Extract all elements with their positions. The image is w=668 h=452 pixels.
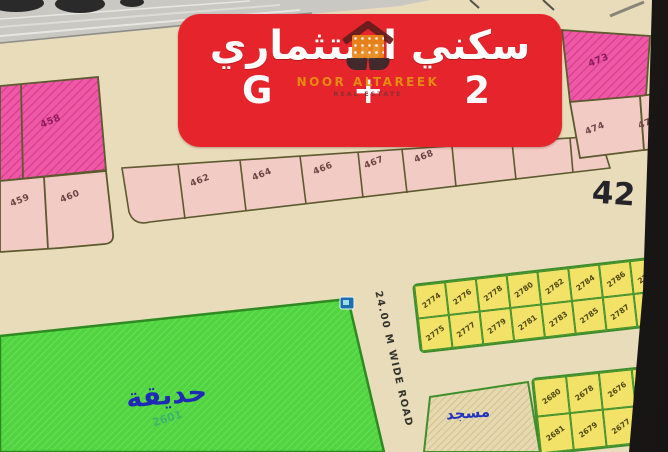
plot-number: 2789 [640,299,662,319]
plot-473-hatched [562,30,650,102]
plot-cell: 2774 [414,282,449,318]
agency-name: NOOR ALTAREEK [283,75,453,89]
plot-number: 2774 [420,291,442,311]
plot-number: 2778 [482,284,504,304]
plot-cell: 2678 [566,373,603,413]
plot-cell: 2777 [449,312,484,348]
plot-cell: 2780 [507,272,542,308]
plot-number: 2677 [610,417,632,437]
plot-cell: 2783 [541,301,576,337]
plot-cell: 2775 [418,315,453,351]
plot-number: 2678 [573,383,595,403]
plot-474 [570,96,644,158]
plot-number: 2782 [544,277,566,297]
plot-number: 2775 [424,323,446,343]
plot-458-hatched [0,77,106,181]
plot-number: 2675 [643,413,665,433]
plot-number: 2777 [455,320,477,340]
plot-cell: 2787 [603,294,638,330]
pink-plot-cluster-left [0,77,113,252]
plot-cell: 2781 [510,305,545,341]
agency-tagline: REAL ESTATE [283,90,453,98]
plot-number: 2674 [639,376,661,396]
plot-cell: 2786 [599,261,634,297]
plot-number: 2680 [540,387,562,407]
plot-cell: 2785 [572,297,607,333]
plot-number: 2676 [606,380,628,400]
plot-number: 2787 [609,302,631,322]
plot-cell: 2788 [630,258,665,294]
plot-number: 2781 [517,313,539,333]
plot-459-460 [0,171,113,252]
plot-number: 2788 [636,266,658,286]
plot-number: 2785 [578,306,600,326]
plot-cell: 2778 [476,275,511,311]
plot-number: 2784 [574,273,596,293]
yellow-plot-grid-lower: 2680 2678 2676 2674 2681 2679 2677 2675 [531,364,668,452]
district-number: 42 [591,175,637,214]
plot-cell: 2676 [599,369,636,409]
plot-map-image: 2774 2776 2778 2780 2782 2784 2786 2788 … [0,0,668,452]
map-marker-icon [340,297,354,309]
plot-number: 2681 [544,423,566,443]
plot-cell: 2779 [480,308,515,344]
plot-number: 2779 [486,316,508,336]
agency-watermark: NOOR ALTAREEK REAL ESTATE [283,16,453,98]
plot-number: 2786 [605,270,627,290]
plot-cell: 2680 [533,376,570,416]
plot-cell: 2674 [632,366,668,406]
plot-cell: 2679 [570,410,607,450]
mosque-label: مسجد [445,402,490,423]
plot-cell: 2681 [537,413,574,452]
plot-cell: 2776 [445,279,480,315]
plot-number: 2783 [547,309,569,329]
plot-cell: 2677 [603,406,640,446]
floors-count: 2 [464,72,490,109]
house-book-logo-icon [339,16,397,72]
plot-cell: 2782 [537,268,572,304]
plot-number: 2780 [513,280,535,300]
floors-ground: G [242,72,272,109]
plot-number: 2679 [577,420,599,440]
plot-cell: 2675 [636,403,668,443]
plot-cell: 2789 [634,290,668,326]
plot-number: 2776 [451,287,473,307]
plot-cell: 2784 [568,265,603,301]
